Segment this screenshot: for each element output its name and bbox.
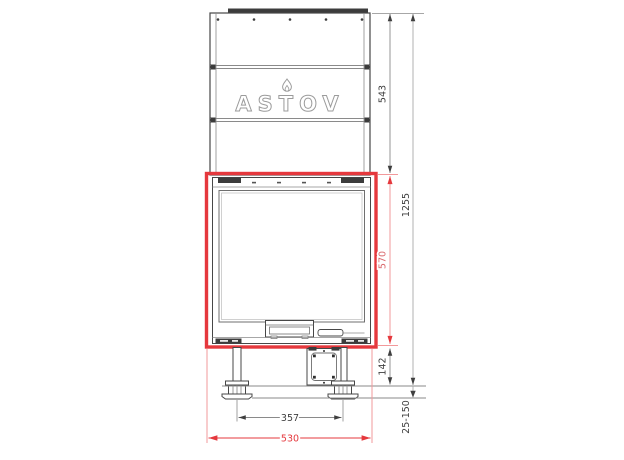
hinge-right [341, 178, 364, 184]
dim-543-label: 543 [378, 85, 389, 103]
dim-142: 142 [378, 349, 391, 385]
dim-543: 543 [378, 14, 391, 173]
dim-357-label: 357 [281, 413, 299, 424]
brand-logo-text: ASTOV [235, 92, 344, 116]
upper-flue-panel: ASTOV [210, 9, 370, 176]
door-handle [266, 321, 314, 339]
door-latch [318, 330, 343, 337]
firebox-door-assembly [207, 174, 377, 348]
drawing-canvas: ASTOV [0, 0, 624, 460]
adjustable-foot-right [328, 381, 358, 399]
center-bracket [307, 347, 341, 385]
dim-570-label: 570 [378, 251, 389, 269]
dim-570: 570 [378, 175, 399, 346]
door-glass [219, 191, 365, 323]
left-leg [233, 348, 241, 382]
dim-530-label: 530 [281, 434, 299, 445]
dim-142-label: 142 [378, 357, 389, 375]
base-and-legs [222, 347, 426, 399]
hinge-left [218, 178, 241, 184]
dim-1255: 1255 [401, 14, 413, 385]
dim-1255-label: 1255 [401, 193, 412, 217]
dim-25-150: 25-150 [401, 386, 416, 434]
dim-357: 357 [237, 400, 343, 424]
dim-25-150-label: 25-150 [401, 400, 412, 434]
adjustable-foot-left [222, 381, 252, 399]
fireplace-technical-drawing: ASTOV [0, 0, 624, 460]
